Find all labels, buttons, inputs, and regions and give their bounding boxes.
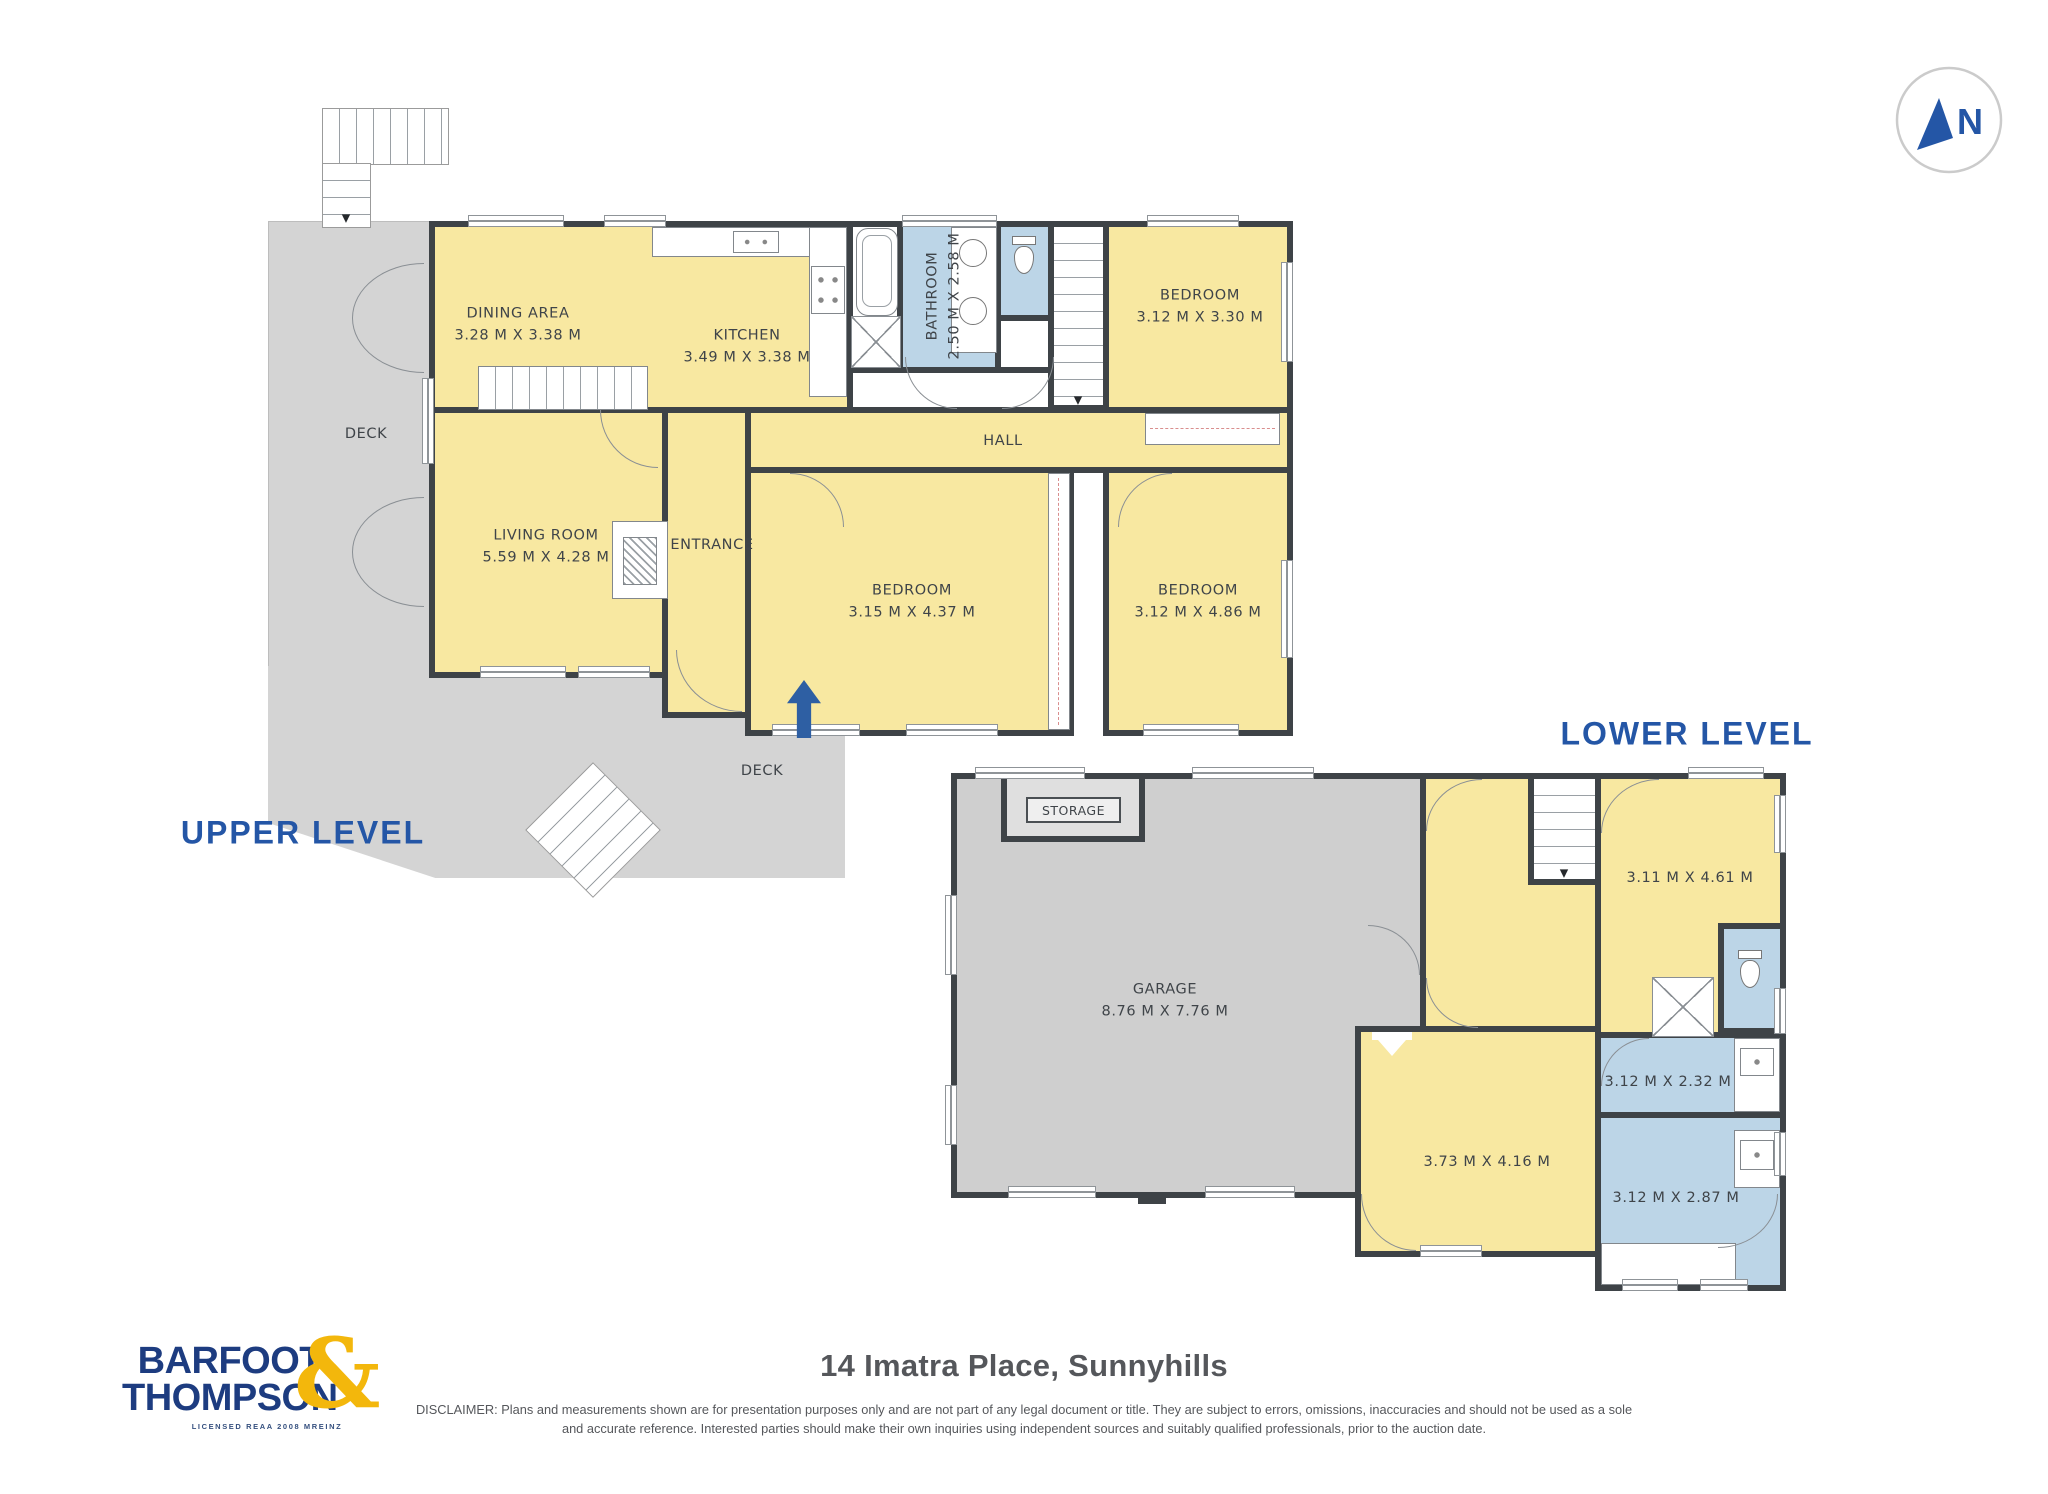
window bbox=[480, 666, 566, 678]
room-label-bedroom-mid: BEDROOM3.15 M X 4.37 M bbox=[849, 580, 976, 625]
window bbox=[945, 1085, 957, 1145]
hall-wardrobe bbox=[1145, 413, 1280, 445]
room-label-kitchen: KITCHEN3.49 M X 3.38 M bbox=[684, 325, 811, 370]
window bbox=[1205, 1186, 1295, 1198]
lower-level-title: LOWER LEVEL bbox=[1560, 716, 1813, 753]
room-label-garage: GARAGE8.76 M X 7.76 M bbox=[1102, 979, 1229, 1024]
window bbox=[1774, 795, 1786, 853]
window bbox=[975, 767, 1085, 779]
window bbox=[468, 215, 564, 227]
door-arc bbox=[1002, 357, 1054, 409]
toilet-icon bbox=[1738, 950, 1762, 988]
window bbox=[902, 215, 997, 227]
window bbox=[1281, 262, 1293, 362]
bathtub-icon bbox=[856, 228, 898, 316]
stairs-down-arrow-icon: ▼ bbox=[1560, 867, 1568, 880]
window bbox=[604, 215, 666, 227]
fireplace bbox=[612, 521, 668, 599]
barfoot-thompson-logo: BARFOOT THOMPSON & LICENSED REAA 2008 MR… bbox=[122, 1343, 402, 1431]
entry-stairs-upper-flight bbox=[322, 108, 449, 165]
door-gap bbox=[1372, 1032, 1412, 1040]
room-label-living: LIVING ROOM5.59 M X 4.28 M bbox=[483, 525, 610, 570]
window bbox=[1281, 560, 1293, 658]
kitchen-bench bbox=[478, 366, 648, 410]
compass: N bbox=[1893, 64, 2005, 176]
room-label-bedroom-top: BEDROOM3.12 M X 3.30 M bbox=[1137, 285, 1264, 330]
room-label-bathroom: BATHROOM2.50 M X 2.58 M bbox=[922, 233, 967, 360]
room-label-rumpus: 3.11 M X 4.61 M bbox=[1627, 867, 1754, 889]
shower-icon bbox=[851, 316, 901, 368]
room-label-lower-bathroom: 3.12 M X 2.87 M bbox=[1613, 1187, 1740, 1209]
window bbox=[1688, 767, 1764, 779]
window bbox=[1420, 1245, 1482, 1257]
room-label-entrance: ENTRANCE bbox=[670, 534, 753, 556]
window bbox=[1774, 988, 1786, 1034]
stairs-down-arrow-icon: ▼ bbox=[1074, 394, 1082, 407]
stairs-down-arrow-icon: ▼ bbox=[342, 212, 350, 225]
window bbox=[1774, 1132, 1786, 1176]
window bbox=[906, 724, 998, 736]
toilet-icon bbox=[1012, 236, 1036, 274]
garage-door-marker bbox=[1138, 1192, 1166, 1204]
laundry-tub-icon bbox=[1740, 1048, 1774, 1076]
window bbox=[1192, 767, 1314, 779]
property-address-title: 14 Imatra Place, Sunnyhills bbox=[820, 1348, 1228, 1384]
compass-rose-icon: N bbox=[1893, 64, 2005, 176]
window bbox=[1147, 215, 1239, 227]
logo-wordmark: BARFOOT THOMPSON & bbox=[122, 1343, 322, 1417]
upper-level-title: UPPER LEVEL bbox=[181, 815, 425, 852]
disclaimer-text: DISCLAIMER: Plans and measurements shown… bbox=[409, 1400, 1639, 1438]
wardrobe-rail bbox=[1058, 478, 1059, 725]
storage-label-box: STORAGE bbox=[1026, 797, 1121, 823]
window bbox=[1008, 1186, 1096, 1198]
shower-icon bbox=[1652, 977, 1714, 1037]
logo-ampersand-icon: & bbox=[294, 1327, 380, 1421]
kitchen-sink-icon bbox=[733, 231, 779, 253]
room-label-laundry: 3.12 M X 2.32 M bbox=[1605, 1071, 1732, 1093]
compass-north-label: N bbox=[1957, 101, 1983, 142]
window bbox=[1700, 1279, 1748, 1291]
room-label-dining: DINING AREA3.28 M X 3.38 M bbox=[455, 303, 582, 348]
stove-icon bbox=[811, 266, 845, 314]
window bbox=[422, 378, 434, 464]
stairs-upper-level bbox=[1048, 221, 1109, 411]
basin-icon bbox=[1740, 1140, 1774, 1170]
bedroom-wardrobe-strip bbox=[1048, 473, 1070, 730]
window bbox=[945, 895, 957, 975]
floorplan-page: N ▼ ▼ bbox=[0, 0, 2048, 1494]
room-label-lower-bedroom: 3.73 M X 4.16 M bbox=[1424, 1151, 1551, 1173]
bathtub-inner bbox=[862, 235, 892, 307]
deck-label: DECK bbox=[345, 423, 387, 445]
window bbox=[772, 724, 860, 736]
window bbox=[1622, 1279, 1678, 1291]
door-arc bbox=[905, 357, 957, 409]
window bbox=[1143, 724, 1239, 736]
room-label-bedroom-right: BEDROOM3.12 M X 4.86 M bbox=[1135, 580, 1262, 625]
deck-label: DECK bbox=[741, 760, 783, 782]
fireplace-hatch bbox=[623, 537, 657, 585]
room-label-hall: HALL bbox=[983, 430, 1022, 452]
window bbox=[578, 666, 650, 678]
wardrobe-rail bbox=[1150, 428, 1275, 429]
